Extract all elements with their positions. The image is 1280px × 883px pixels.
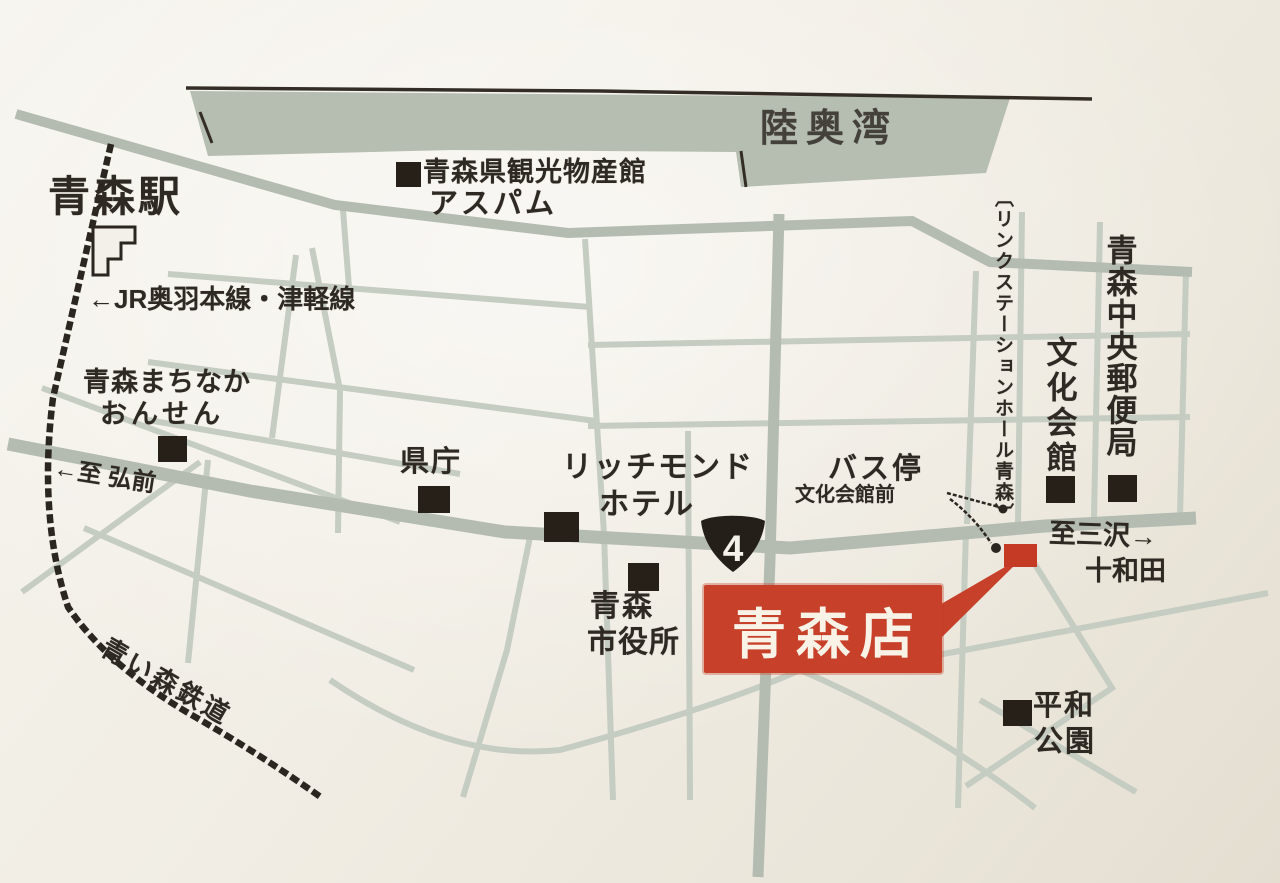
street	[604, 534, 613, 800]
poi-marker-city-hall	[628, 563, 659, 591]
street	[588, 417, 1190, 426]
label-cityhall-line1: 青森	[590, 591, 654, 623]
street	[938, 593, 1268, 655]
street	[688, 431, 690, 800]
store-location-marker	[1004, 544, 1037, 567]
street	[967, 271, 976, 524]
poi-marker-aspam	[396, 162, 421, 187]
label-aomori-station: 青森駅	[48, 175, 183, 219]
label-machinaka-onsen-line2: おんせん	[100, 400, 224, 428]
label-bunka-kaikan: 文化会館	[1042, 336, 1075, 486]
street	[463, 537, 530, 797]
label-aspam-line1: 青森県観光物産館	[423, 158, 647, 186]
label-to-misawa-line2: 十和田	[1085, 557, 1166, 585]
label-post-office: 青森中央郵便局	[1102, 234, 1135, 484]
poi-marker-onsen	[158, 436, 187, 462]
store-callout-label: 青森店	[722, 590, 924, 669]
label-machinaka-onsen-line1: 青森まちなか	[83, 368, 251, 396]
store-callout-tail	[936, 556, 1024, 643]
poi-marker-richmond-hotel	[544, 512, 579, 542]
store-callout: 青森店	[704, 585, 942, 673]
label-to-misawa-line1: 至三沢→	[1049, 519, 1158, 551]
poi-marker-heiwa-park	[1003, 700, 1032, 726]
street	[188, 460, 208, 663]
label-busstop-line1: バス停	[828, 454, 924, 484]
label-mutsu-bay: 陸奥湾	[760, 110, 898, 150]
label-jr-lines: ←JR奥羽本線・津軽線	[88, 286, 355, 313]
access-map: 4 陸奥湾 青森県観光物産館 アスパム 青森駅 ←JR奥羽本線・津軽線 青森まち…	[0, 0, 1280, 883]
label-busstop-line2: 文化会館前	[795, 485, 895, 506]
label-richmond-line2: ホテル	[599, 489, 695, 521]
label-richmond-line1: リッチモンド	[562, 452, 754, 484]
route4-number: 4	[723, 528, 744, 569]
label-kencho: 県庁	[400, 447, 462, 477]
label-heiwa-park-line1: 平和	[1033, 691, 1095, 721]
label-link-station-hall: 〔リンクステーションホール青森〕	[992, 188, 1012, 518]
station-building-outline	[93, 227, 135, 275]
street	[958, 530, 966, 808]
label-aspam-line2: アスパム	[429, 189, 557, 219]
street	[1180, 272, 1186, 517]
label-cityhall-line2: 市役所	[587, 627, 680, 659]
bus-stop-dot-south	[991, 543, 1001, 553]
poi-marker-kencho	[418, 486, 450, 513]
label-heiwa-park-line2: 公園	[1034, 727, 1096, 757]
street-curve	[330, 670, 1035, 808]
